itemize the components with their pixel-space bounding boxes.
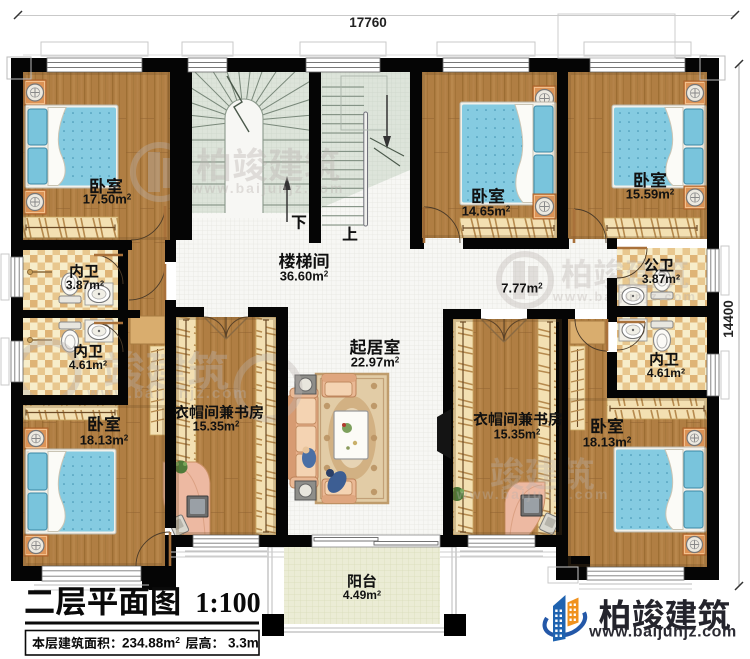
svg-text:22.97m2: 22.97m2: [351, 355, 400, 370]
svg-text:4.61m2: 4.61m2: [647, 366, 685, 380]
svg-text:14400: 14400: [721, 300, 736, 338]
svg-text:18.13m2: 18.13m2: [583, 435, 632, 450]
svg-text:www.baijunjz.com: www.baijunjz.com: [552, 289, 697, 304]
svg-text:234.88m2: 234.88m2: [122, 635, 180, 651]
svg-text:36.60m2: 36.60m2: [280, 269, 329, 284]
svg-text:7.77m2: 7.77m2: [501, 281, 543, 296]
svg-text:17.50m2: 17.50m2: [83, 192, 132, 207]
svg-text:4.49m2: 4.49m2: [343, 588, 381, 602]
svg-text:www.baijunjz.com: www.baijunjz.com: [191, 180, 345, 196]
svg-text:15.35m2: 15.35m2: [494, 427, 541, 441]
svg-text:4.61m2: 4.61m2: [69, 358, 107, 372]
svg-text:3.87m2: 3.87m2: [66, 278, 104, 292]
svg-text:15.59m2: 15.59m2: [626, 187, 675, 202]
svg-text:3.3m: 3.3m: [228, 636, 259, 651]
svg-text:14.65m2: 14.65m2: [462, 204, 511, 219]
svg-text:www.baijunjz.com: www.baijunjz.com: [456, 486, 610, 502]
svg-text:18.13m2: 18.13m2: [80, 433, 129, 448]
svg-text:17760: 17760: [349, 15, 387, 30]
svg-text:15.35m2: 15.35m2: [193, 419, 240, 433]
svg-text:1:100: 1:100: [195, 588, 260, 619]
svg-text:3.87m2: 3.87m2: [642, 272, 680, 286]
svg-text:www.baijunjz.com: www.baijunjz.com: [588, 624, 737, 641]
